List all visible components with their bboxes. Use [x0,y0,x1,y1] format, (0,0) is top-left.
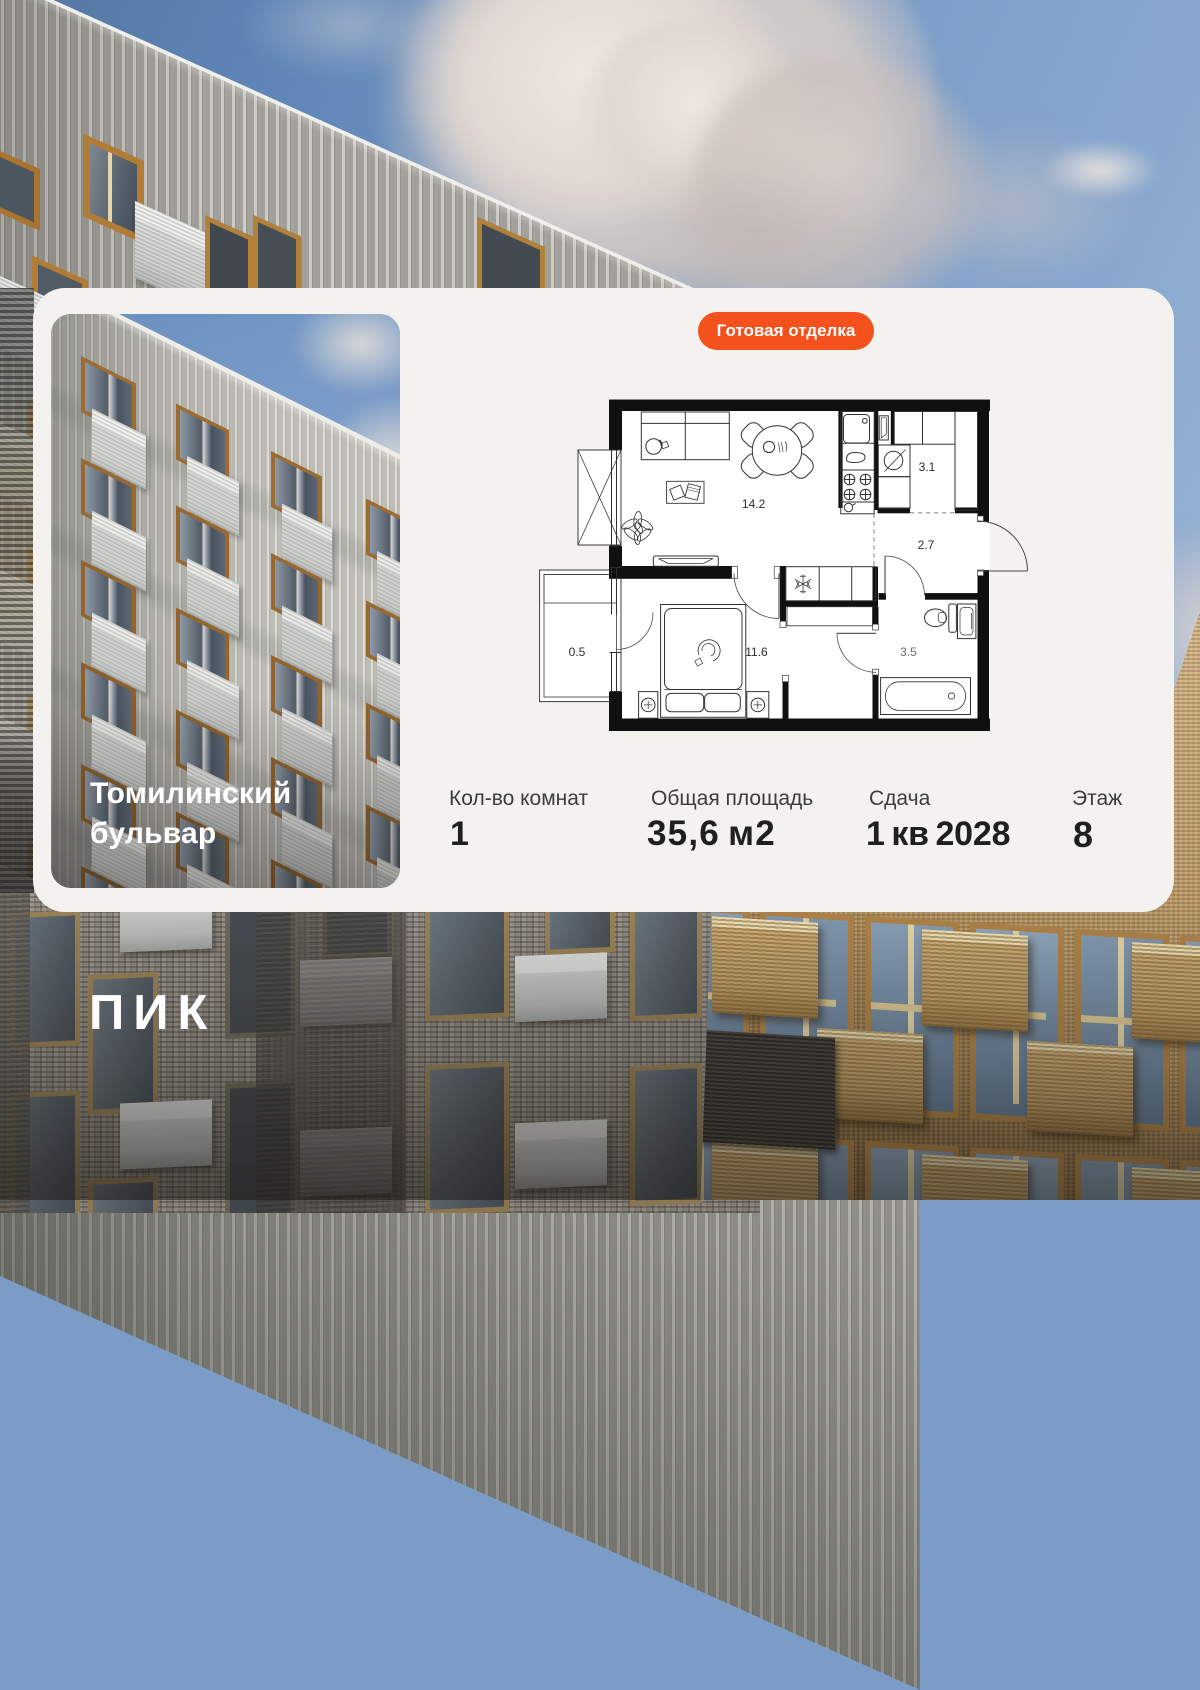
svg-text:3.5: 3.5 [900,645,917,659]
svg-text:11.6: 11.6 [745,645,768,659]
svg-text:3.1: 3.1 [919,460,936,474]
svg-text:0.5: 0.5 [569,645,586,659]
svg-text:14.2: 14.2 [742,497,766,511]
svg-text:2.7: 2.7 [918,538,935,552]
